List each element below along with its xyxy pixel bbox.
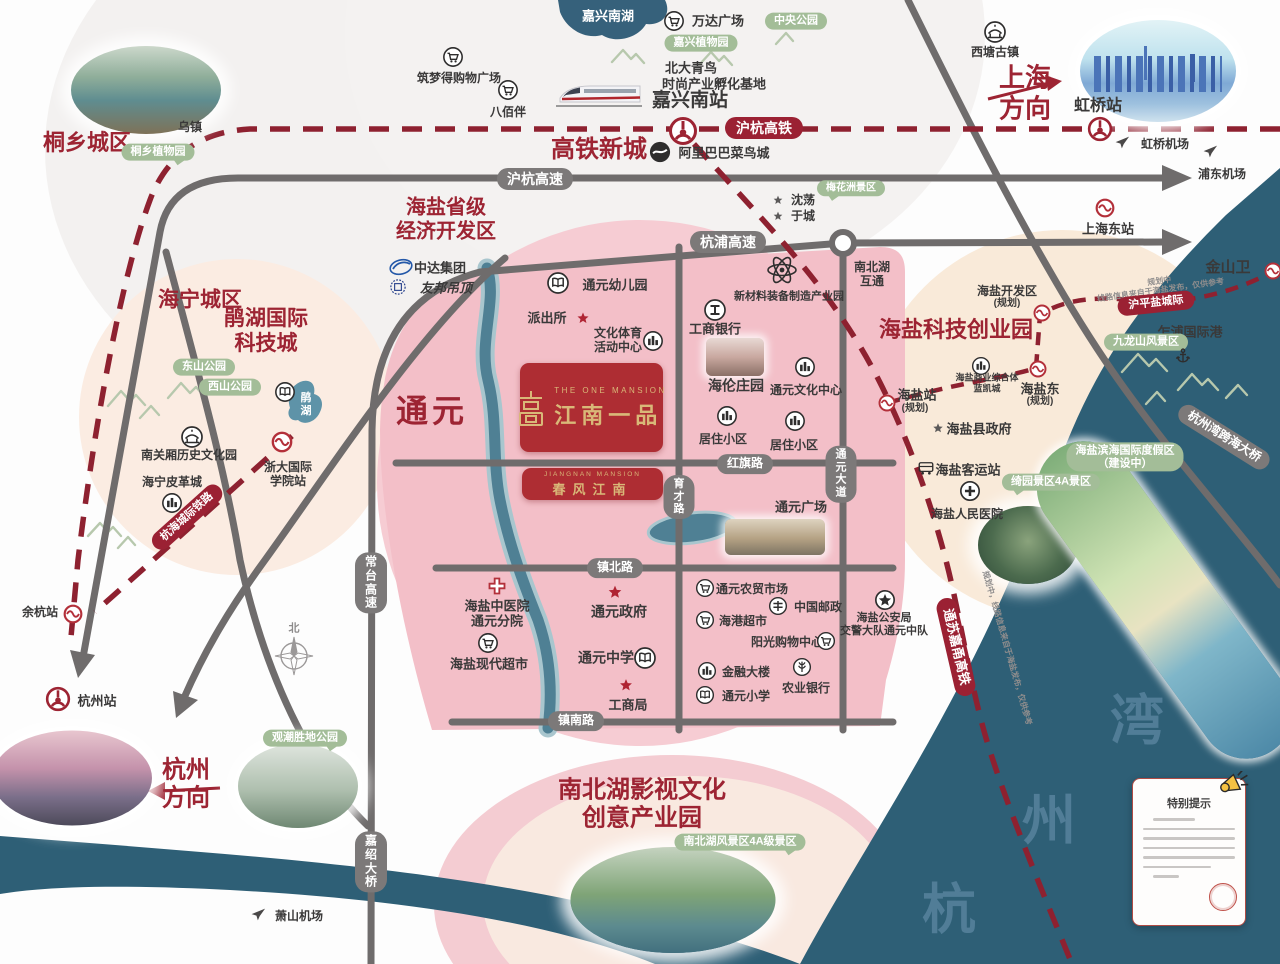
hangzhou-station-label: 杭州站 <box>77 693 116 708</box>
police-station-label: 派出所 <box>527 310 566 325</box>
nanbeihu-industry-label: 南北湖影视文化创意产业园 <box>558 777 726 834</box>
tongyuan-culture-center-label: 通元文化中心 <box>770 383 842 397</box>
xitang-scenic-icon <box>983 20 1007 44</box>
tongxiang-botanic-pill: 桐乡植物园 <box>122 144 195 161</box>
culture-sports-center-label: 文化体育活动中心 <box>594 326 642 354</box>
zheda-college-book-icon <box>274 381 296 403</box>
xiaoshan-airport-icon <box>250 907 267 924</box>
hsr-new-town-label: 高铁新城 <box>551 136 647 164</box>
one-mansion-name-en: THE ONE MANSION <box>554 386 667 395</box>
icbc-label: 工商银行 <box>689 321 741 336</box>
finance-tower-building-icon <box>697 661 717 681</box>
yucheng-star-icon <box>773 211 784 222</box>
primary-school-book-icon <box>695 685 715 705</box>
shendang-star-icon <box>773 195 784 206</box>
traffic-police-star-icon <box>874 589 896 611</box>
qiyuan-pill: 绮园景区4A景区 <box>1002 474 1100 491</box>
dongshan-park-pill: 东山公园 <box>173 359 235 376</box>
wanda-cart-icon <box>663 10 685 32</box>
interchange-circle <box>832 232 854 254</box>
chunfeng-jiangnan-name-cn: 春风江南 <box>552 479 632 498</box>
tongxiang-city-label: 桐乡城区 <box>43 130 131 156</box>
zhongda-logo <box>387 255 415 279</box>
xishan-park-pill: 西山公园 <box>199 379 261 396</box>
yucheng-label: 于城 <box>791 209 815 223</box>
hangzhou-direction-label: 杭州方向 <box>162 757 210 814</box>
guanchao-park-pill: 观潮胜地公园 <box>263 730 347 747</box>
haiyan-station-icon <box>878 394 896 412</box>
sunshine-cart-icon <box>816 631 836 651</box>
residential-b-building-icon <box>784 410 806 432</box>
yucai-road-pill: 育才路 <box>664 475 695 519</box>
commercial-complex-building-icon <box>971 356 991 376</box>
haiyan-devzone-station-icon <box>1033 304 1051 322</box>
culture-sports-building-icon <box>642 330 664 352</box>
jiaxing-south-station-icon <box>668 116 698 146</box>
north-label: 北 <box>289 623 300 636</box>
haiyan-station-label: 海盐站 <box>897 387 936 402</box>
central-park-pill: 中央公园 <box>765 13 827 30</box>
police-station-star-icon <box>576 311 590 325</box>
jiaxing-nanhu-label: 嘉兴南湖 <box>582 8 634 23</box>
zheda-intl-station-label: 浙大国际学院站 <box>264 460 312 488</box>
pudong-airport-icon <box>1202 144 1219 161</box>
pudong-airport-label: 浦东机场 <box>1198 167 1246 181</box>
haiyan-station-note: (规划) <box>902 403 929 415</box>
middle-school-book-icon <box>633 646 657 670</box>
tongyuan-middle-school-label: 通元中学 <box>578 650 634 667</box>
zhapu-port-anchor-icon <box>1174 347 1192 365</box>
shanghai-direction-label: 上海方向 <box>999 62 1051 123</box>
train-illustration <box>556 84 642 110</box>
tongyuan-gov-label: 通元政府 <box>591 604 647 621</box>
haiyan-people-hospital-label: 海盐人民医院 <box>931 507 1003 521</box>
shendang-label: 沈荡 <box>791 193 815 207</box>
yuhang-station-label: 余杭站 <box>22 605 58 619</box>
sunshine-mall-label: 阳光购物中心 <box>751 635 823 649</box>
sea-char-wan: 湾 <box>1110 690 1164 754</box>
tongyuan-gov-star-icon <box>607 584 623 600</box>
red-stamp <box>1209 883 1237 911</box>
one-mansion-emblem-icon <box>516 390 546 426</box>
icbc-bank-icon <box>703 298 727 322</box>
haiyandong-station-note: (规划) <box>1027 396 1054 408</box>
tongyuan-square-photo <box>725 519 825 555</box>
haiyan-bus-station-label: 海盐客运站 <box>935 462 1000 477</box>
juanhu-lake-label: 鹃湖 <box>301 392 312 418</box>
kindergarten-book-icon <box>546 271 570 295</box>
sea-char-hang: 杭 <box>922 879 976 943</box>
hongqiao-station-icon <box>1087 116 1113 142</box>
tongyuan-farmers-market-label: 通元农贸市场 <box>716 582 788 596</box>
tongyuan-primary-label: 通元小学 <box>722 689 770 703</box>
china-post-icon <box>768 596 788 616</box>
jiaxing-south-station-label: 嘉兴南站 <box>652 90 728 112</box>
location-map: THE ONE MANSION 江南一品 JIANGNAN MANSION 春风… <box>0 0 1280 964</box>
farmers-market-cart-icon <box>695 578 715 598</box>
one-mansion-name-cn: 江南一品 <box>554 398 667 430</box>
haiyan-tech-park-label: 海盐科技创业园 <box>879 317 1033 343</box>
wuzhen-label: 乌镇 <box>178 120 202 134</box>
beidaqingniao-label-2: 时尚产业孵化基地 <box>662 76 766 91</box>
hangpu-expressway-pill: 杭浦高速 <box>690 231 766 253</box>
tcm-hospital-cross-icon <box>487 576 507 596</box>
residential-a-label: 居住小区 <box>699 432 747 446</box>
modern-market-cart-icon <box>477 632 499 654</box>
haiyandong-station-icon <box>1029 360 1047 378</box>
haiyan-dev-zone-label: 海盐省级经济开发区 <box>396 196 496 243</box>
sea-char-zhou: 州 <box>1022 790 1076 854</box>
people-hospital-cross-icon <box>959 480 981 502</box>
zheda-intl-station-icon <box>271 431 293 453</box>
zhennan-road-pill: 镇南路 <box>548 711 604 731</box>
hongqiao-airport-icon <box>1114 135 1131 152</box>
xiaoshan-airport-label: 萧山机场 <box>275 909 323 923</box>
babaiban-cart-icon <box>497 79 519 101</box>
gongshangju-star-icon <box>619 678 634 693</box>
jiashao-bridge-pill: 嘉绍大桥 <box>355 831 387 892</box>
cainiao-bird-icon <box>649 141 671 163</box>
guanchao-pagoda-photo <box>238 744 358 828</box>
residential-a-building-icon <box>716 405 738 427</box>
haining-leather-city-label: 海宁皮革城 <box>142 475 202 489</box>
huhang-expressway-pill: 沪杭高速 <box>497 168 573 190</box>
hongqi-road-pill: 红旗路 <box>717 454 773 474</box>
nanbeihu-interchange-label: 南北湖互通 <box>854 260 890 288</box>
hongqiao-station-label: 虹桥站 <box>1074 98 1122 117</box>
huhang-hsr-pill: 沪杭高铁 <box>725 117 803 139</box>
tongyuan-square-label: 通元广场 <box>775 499 827 514</box>
shanghai-east-station-label: 上海东站 <box>1082 221 1134 236</box>
meihuazhou-pill: 梅花洲景区 <box>817 180 885 196</box>
compass-icon <box>275 637 313 675</box>
nanguanxiang-scenic-icon <box>180 425 204 449</box>
abc-bank-icon <box>792 657 812 677</box>
binhai-resort-pill: 海盐滨海国际度假区（建设中） <box>1067 442 1184 471</box>
tongyuan-label: 通元 <box>396 393 468 431</box>
nanguanxiang-label: 南关厢历史文化园 <box>141 448 237 462</box>
bus-station-icon <box>917 459 935 477</box>
alibaba-cainiao-label: 阿里巴巴菜鸟城 <box>678 145 769 160</box>
wanda-plaza-label: 万达广场 <box>692 13 744 28</box>
changtai-expressway-pill: 常台高速 <box>355 552 387 613</box>
tongyuan-kindergarten-label: 通元幼儿园 <box>582 277 647 292</box>
helen-manor-photo <box>706 338 764 376</box>
hangzhou-station-icon <box>45 686 71 712</box>
haiyan-gov-label: 海盐县政府 <box>946 421 1011 436</box>
jiaxing-botanic-pill: 嘉兴植物园 <box>665 35 738 52</box>
culture-center-building-icon <box>794 356 816 378</box>
megaphone-icon <box>1217 771 1251 801</box>
chunfeng-jiangnan-name-en: JIANGNAN MANSION <box>544 471 641 478</box>
zhumengde-mall-label: 筑梦得购物广场 <box>417 71 501 85</box>
youbang-ceiling-label: 友邦吊顶 <box>420 280 472 295</box>
jinshanwei-station-icon <box>1264 262 1280 280</box>
special-notice-card: 特别提示 <box>1132 778 1246 926</box>
finance-tower-label: 金融大楼 <box>722 665 770 679</box>
abc-bank-label: 农业银行 <box>782 681 830 695</box>
haiyan-tcm-hospital-label: 海盐中医院通元分院 <box>464 599 529 630</box>
youbang-logo <box>389 278 407 296</box>
haiyan-gov-star-icon <box>932 422 944 434</box>
beidaqingniao-label: 北大青鸟 <box>665 60 717 75</box>
residential-b-label: 居住小区 <box>770 438 818 452</box>
new-material-park-label: 新材料装备制造产业园 <box>734 291 844 304</box>
shanghai-east-station-icon <box>1095 198 1115 218</box>
juanhu-tech-city-label: 鹃湖国际科技城 <box>224 307 308 357</box>
gongshangju-label: 工商局 <box>608 697 647 712</box>
haigang-market-label: 海港超市 <box>719 614 767 628</box>
china-post-label: 中国邮政 <box>794 600 842 614</box>
haiyan-modern-market-label: 海盐现代超市 <box>450 656 528 671</box>
nanbeihu-photo <box>571 847 776 953</box>
one-mansion-block: THE ONE MANSION 江南一品 <box>520 363 663 452</box>
hongqiao-airport-label: 虹桥机场 <box>1141 137 1189 151</box>
yuhang-station-icon <box>63 604 83 624</box>
haiyan-devzone-station-label: 海盐开发区 <box>977 284 1037 298</box>
tongyuan-avenue-pill: 通元大道 <box>826 446 857 503</box>
babaiban-label: 八佰伴 <box>490 105 526 119</box>
zhongda-group-label: 中达集团 <box>414 260 466 275</box>
leather-city-building-icon <box>161 492 183 514</box>
xitang-town-label: 西塘古镇 <box>971 45 1019 59</box>
nanbeihu-scenic-pill: 南北湖风景区4A级景区 <box>674 834 805 851</box>
haiyan-devzone-station-note: (规划) <box>994 298 1021 310</box>
chunfeng-jiangnan-block: JIANGNAN MANSION 春风江南 <box>522 468 663 500</box>
haiyandong-station-label: 海盐东 <box>1020 381 1059 396</box>
traffic-police-label: 海盐公安局交警大队通元中队 <box>840 612 928 638</box>
haigang-cart-icon <box>695 610 715 630</box>
zhumengde-cart-icon <box>442 46 464 68</box>
zhenbei-road-pill: 镇北路 <box>587 558 643 578</box>
helen-manor-label: 海伦庄园 <box>708 378 764 395</box>
new-material-atom-icon <box>764 252 800 288</box>
